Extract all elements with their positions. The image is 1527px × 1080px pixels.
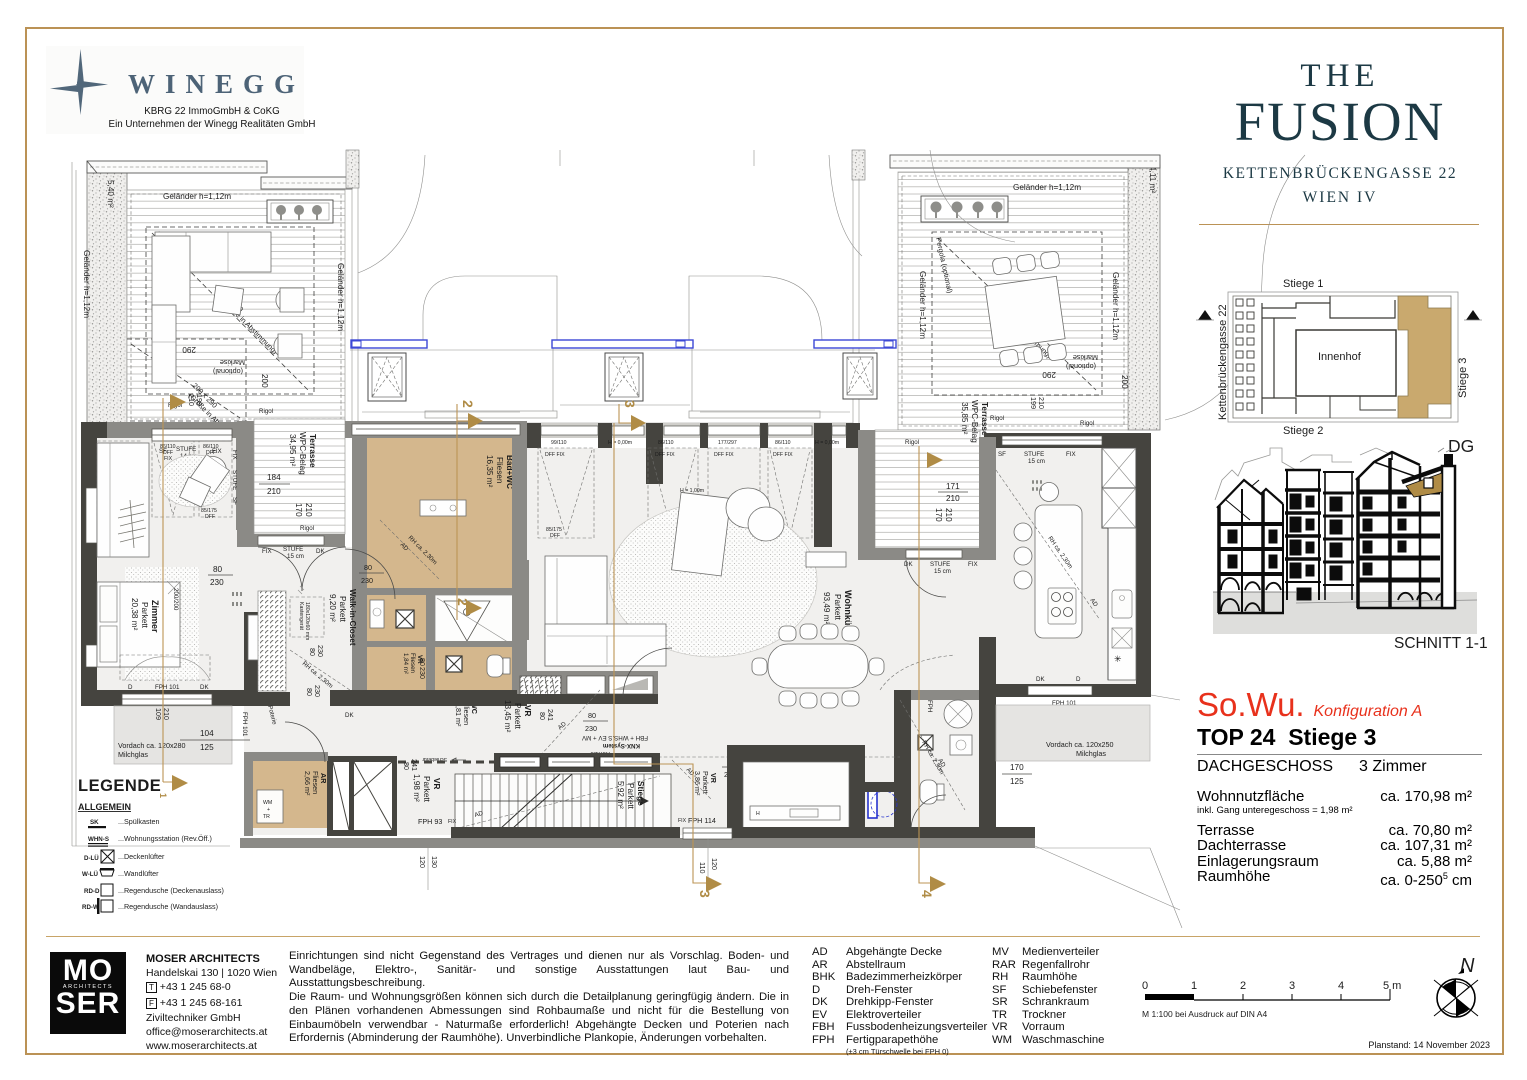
svg-text:FPH 101: FPH 101: [155, 684, 180, 691]
svg-text:20,38 m²: 20,38 m²: [130, 598, 139, 631]
svg-text:86/110: 86/110: [658, 440, 674, 446]
svg-text:DFF FIX: DFF FIX: [773, 452, 793, 458]
svg-text:✳: ✳: [1114, 654, 1122, 664]
svg-text:80: 80: [305, 688, 314, 696]
svg-text:Geländer h=1,12m: Geländer h=1,12m: [336, 263, 345, 331]
svg-text:H = 0,00m: H = 0,00m: [608, 440, 632, 446]
svg-text:99/110: 99/110: [551, 440, 567, 446]
svg-text:80: 80: [538, 712, 547, 720]
svg-text:5,92 m²: 5,92 m²: [616, 781, 625, 809]
svg-text:Geländer h=1,12m: Geländer h=1,12m: [1111, 272, 1120, 340]
svg-text:DK: DK: [345, 712, 354, 719]
svg-text:Rigol: Rigol: [259, 408, 273, 415]
svg-text:Milchglas: Milchglas: [1076, 749, 1106, 758]
svg-text:LEGENDE: LEGENDE: [78, 777, 161, 795]
svg-text:177/297: 177/297: [718, 440, 737, 446]
svg-text:FPH 114: FPH 114: [688, 816, 716, 825]
svg-text:230: 230: [585, 724, 597, 733]
svg-text:80: 80: [308, 648, 317, 656]
svg-text:...Spülkasten: ...Spülkasten: [118, 817, 160, 826]
svg-text:210: 210: [1037, 397, 1046, 409]
svg-text:230: 230: [313, 685, 322, 697]
svg-text:Fliesen: Fliesen: [495, 457, 504, 484]
svg-text:230: 230: [316, 645, 325, 657]
svg-text:ALLGEMEIN: ALLGEMEIN: [78, 802, 131, 812]
svg-text:4: 4: [919, 890, 935, 898]
svg-text:230: 230: [418, 667, 427, 679]
svg-text:Rigol: Rigol: [1080, 420, 1094, 427]
svg-text:93,49 m²: 93,49 m²: [822, 592, 831, 625]
svg-text:FIX: FIX: [968, 561, 978, 568]
svg-text:3: 3: [697, 890, 713, 898]
svg-text:FPH 93: FPH 93: [418, 817, 442, 826]
svg-text:FBH + WHS.S EV + MV: FBH + WHS.S EV + MV: [581, 734, 648, 741]
svg-text:80: 80: [364, 563, 372, 572]
svg-text:210: 210: [267, 487, 281, 496]
svg-text:171: 171: [946, 482, 960, 491]
svg-text:Rigol: Rigol: [300, 525, 314, 532]
svg-text:Zimmer: Zimmer: [150, 600, 160, 633]
svg-text:RD-D: RD-D: [84, 888, 100, 895]
svg-text:WHN-S: WHN-S: [88, 836, 109, 843]
svg-text:125: 125: [200, 743, 214, 752]
svg-text:(optional): (optional): [1066, 362, 1096, 371]
svg-text:Parkett: Parkett: [140, 602, 149, 629]
svg-text:86/110: 86/110: [775, 440, 791, 446]
svg-text:...Regendusche (Deckenauslass): ...Regendusche (Deckenauslass): [118, 886, 224, 895]
svg-text:TR: TR: [263, 814, 270, 820]
svg-text:210: 210: [944, 508, 953, 522]
svg-text:DK: DK: [316, 548, 325, 555]
svg-text:3,86 m²: 3,86 m²: [693, 771, 702, 796]
svg-text:34,95 m²: 34,95 m²: [288, 434, 297, 467]
svg-text:SCHNITT 1-1: SCHNITT 1-1: [1394, 635, 1488, 652]
svg-text:210: 210: [304, 503, 313, 517]
svg-text:16,35 m²: 16,35 m²: [485, 455, 494, 488]
svg-text:2: 2: [460, 400, 476, 408]
svg-text:STUFE: STUFE: [176, 446, 196, 453]
svg-text:DFF FIX: DFF FIX: [545, 452, 565, 458]
svg-text:WPC-Belag: WPC-Belag: [970, 400, 979, 443]
svg-text:210: 210: [187, 394, 196, 406]
svg-text:15 cm: 15 cm: [287, 553, 304, 560]
svg-text:STUFE: STUFE: [1024, 451, 1044, 458]
svg-text:Markise: Markise: [1073, 353, 1098, 362]
svg-text:Fliesen: Fliesen: [409, 653, 416, 674]
svg-text:15 cm: 15 cm: [1028, 458, 1045, 465]
svg-text:104: 104: [200, 729, 214, 738]
svg-text:VR: VR: [523, 705, 532, 716]
svg-text:FIX: FIX: [262, 548, 272, 555]
svg-text:...Regendusche (Wandauslass): ...Regendusche (Wandauslass): [118, 902, 218, 911]
svg-text:170: 170: [934, 508, 943, 522]
svg-text:290: 290: [182, 345, 196, 354]
svg-text:Stiege 1: Stiege 1: [1283, 278, 1323, 290]
svg-text:STUFE: STUFE: [930, 561, 950, 568]
svg-text:199: 199: [195, 394, 204, 406]
svg-text:Vordach ca. 120x280: Vordach ca. 120x280: [118, 741, 186, 750]
svg-text:80: 80: [588, 711, 596, 720]
svg-text:Terrasse: Terrasse: [980, 402, 989, 436]
svg-text:FPH 101: FPH 101: [241, 712, 248, 737]
svg-text:Geländer h=1,12m: Geländer h=1,12m: [1013, 183, 1081, 192]
svg-text:WM: WM: [263, 800, 272, 806]
svg-text:Stiege 2: Stiege 2: [1283, 425, 1323, 437]
svg-text:200/200: 200/200: [172, 588, 179, 611]
svg-text:D: D: [1076, 676, 1081, 683]
svg-text:DK: DK: [904, 561, 913, 568]
svg-text:Kettenbrückengasse 22: Kettenbrückengasse 22: [1217, 304, 1229, 420]
svg-text:2: 2: [455, 598, 471, 606]
svg-text:120: 120: [710, 858, 719, 870]
svg-text:SK: SK: [90, 819, 99, 826]
svg-text:DK: DK: [200, 684, 209, 691]
svg-text:120: 120: [418, 856, 427, 868]
svg-text:3: 3: [622, 400, 638, 408]
svg-text:13,45 m²: 13,45 m²: [503, 700, 512, 733]
svg-text:VR: VR: [432, 778, 441, 789]
svg-text:180x120x60 mm: 180x120x60 mm: [304, 602, 310, 640]
svg-text:FIX: FIX: [1066, 451, 1076, 458]
svg-text:1,98 m²: 1,98 m²: [412, 774, 421, 802]
svg-text:Parkett: Parkett: [833, 594, 842, 621]
svg-text:...Wohnungsstation (Rev.Öff.): ...Wohnungsstation (Rev.Öff.): [118, 834, 212, 843]
svg-text:170: 170: [294, 503, 303, 517]
svg-text:210: 210: [946, 494, 960, 503]
svg-text:D-LÜ: D-LÜ: [84, 855, 99, 862]
svg-text:80: 80: [418, 658, 427, 666]
svg-text:Geländer h=1,12m: Geländer h=1,12m: [918, 271, 927, 339]
svg-text:5,40 m²: 5,40 m²: [106, 180, 115, 208]
svg-text:DG: DG: [1448, 436, 1474, 456]
svg-text:Milchglas: Milchglas: [118, 750, 148, 759]
svg-text:2,66 m²: 2,66 m²: [303, 771, 312, 796]
svg-text:Parkett: Parkett: [513, 703, 522, 730]
svg-text:170: 170: [1010, 763, 1024, 772]
svg-text:4,11 m²: 4,11 m²: [1148, 166, 1157, 193]
svg-text:STUFE: STUFE: [283, 546, 303, 553]
svg-text:H: H: [756, 811, 760, 817]
svg-text:109: 109: [154, 708, 163, 720]
svg-text:110: 110: [698, 862, 707, 873]
svg-text:125: 125: [1010, 777, 1024, 786]
svg-text:290: 290: [1042, 370, 1056, 379]
svg-text:...Wandlüfter: ...Wandlüfter: [118, 869, 159, 878]
svg-text:WPC-Belag: WPC-Belag: [298, 432, 307, 475]
svg-text:80: 80: [213, 565, 223, 574]
svg-text:241: 241: [410, 759, 419, 771]
svg-text:SF: SF: [998, 451, 1006, 458]
svg-text:FIX: FIX: [678, 818, 687, 824]
svg-text:1,84 m²: 1,84 m²: [402, 653, 409, 674]
svg-text:Geländer h=1,12m: Geländer h=1,12m: [163, 192, 231, 201]
svg-text:Rigol: Rigol: [990, 415, 1004, 422]
svg-text:H = 0,00m: H = 0,00m: [815, 440, 839, 446]
svg-text:DK: DK: [1036, 676, 1045, 683]
svg-text:Geländer h=1,12m: Geländer h=1,12m: [82, 250, 91, 318]
svg-text:15 cm: 15 cm: [934, 568, 951, 575]
svg-text:Rigol: Rigol: [905, 439, 919, 446]
svg-text:200: 200: [1120, 375, 1129, 389]
svg-text:Vordach ca. 120x250: Vordach ca. 120x250: [1046, 740, 1114, 749]
svg-text:RD-W: RD-W: [82, 904, 99, 911]
svg-text:...Deckenlüfter: ...Deckenlüfter: [118, 852, 165, 861]
svg-text:DFF: DFF: [550, 533, 560, 539]
svg-text:FIX: FIX: [448, 819, 457, 825]
svg-text:35,85 m²: 35,85 m²: [960, 402, 969, 435]
svg-text:Walk-in-Closet: Walk-in-Closet: [348, 589, 357, 646]
svg-text:Innenhof: Innenhof: [1318, 351, 1362, 363]
svg-text:Kastengerät: Kastengerät: [298, 602, 304, 631]
svg-text:KNX-System: KNX-System: [602, 742, 640, 749]
svg-text:184: 184: [267, 473, 281, 482]
svg-text:130: 130: [430, 856, 439, 868]
svg-text:Parkett: Parkett: [338, 596, 347, 623]
svg-text:241: 241: [546, 709, 555, 721]
svg-text:200: 200: [260, 374, 269, 388]
svg-text:Stiege 3: Stiege 3: [1457, 358, 1469, 398]
svg-text:FPH: FPH: [926, 700, 933, 712]
svg-text:(optional): (optional): [213, 367, 243, 376]
svg-text:DFF FIX: DFF FIX: [655, 452, 675, 458]
svg-text:80: 80: [402, 762, 411, 770]
svg-text:9,20 m²: 9,20 m²: [328, 594, 337, 622]
svg-text:Parkett: Parkett: [626, 783, 635, 810]
svg-text:Stiege: Stiege: [636, 781, 645, 806]
svg-text:D: D: [128, 684, 133, 691]
svg-text:W-LÜ: W-LÜ: [82, 871, 99, 878]
svg-text:Terrasse: Terrasse: [308, 434, 317, 468]
svg-text:230: 230: [210, 578, 224, 587]
svg-text:230: 230: [361, 576, 373, 585]
svg-text:Parkett: Parkett: [422, 776, 431, 803]
svg-text:DFF: DFF: [205, 514, 215, 520]
svg-text:DFF FIX: DFF FIX: [714, 452, 734, 458]
svg-text:199: 199: [1029, 397, 1038, 409]
svg-text:Markise: Markise: [220, 358, 245, 367]
svg-text:+: +: [267, 807, 270, 813]
